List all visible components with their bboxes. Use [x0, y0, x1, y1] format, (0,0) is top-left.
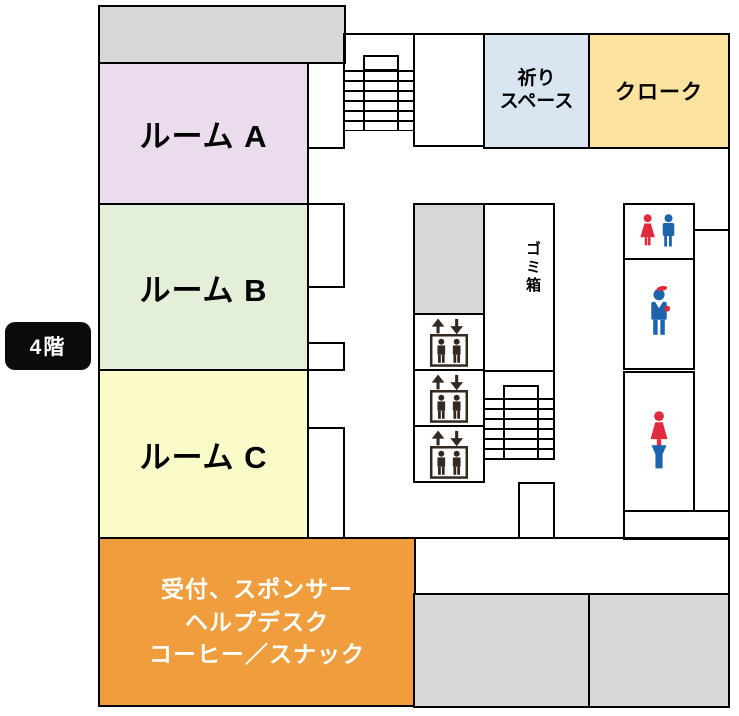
elevator-icon	[426, 317, 472, 367]
reception-label-line3: コーヒー／スナック	[149, 638, 365, 671]
elevator-cell-3	[413, 425, 485, 483]
restroom-men-women-icon	[637, 213, 681, 251]
stair-rail	[503, 398, 505, 458]
stair-rail	[397, 70, 399, 130]
prayer-space-label-line2: スペース	[500, 91, 574, 114]
room-b: ルーム B	[98, 203, 309, 371]
stair-rail	[363, 70, 365, 130]
wall-room-bottom	[413, 145, 485, 147]
restroom-men	[623, 258, 695, 370]
room-a-label: ルーム A	[139, 111, 267, 156]
room-c-label: ルーム C	[139, 432, 267, 477]
floor-map: ルーム A ルーム B ルーム C 受付、スポンサー ヘルプデスク コーヒー／ス…	[0, 0, 739, 716]
room-c: ルーム C	[98, 369, 309, 539]
cloak-room: クローク	[588, 33, 730, 149]
wall-service-divider	[483, 370, 555, 372]
reception-label-line1: 受付、スポンサー	[161, 573, 353, 606]
restroom-men-icon	[639, 285, 679, 343]
restroom-men-women	[623, 203, 695, 260]
room-b-label: ルーム B	[139, 265, 267, 310]
reception-area: 受付、スポンサー ヘルプデスク コーヒー／スナック	[98, 537, 416, 707]
room-b-entrance-lower	[307, 342, 345, 371]
room-c-entrance	[307, 427, 345, 539]
reception-label-line2: ヘルプデスク	[185, 606, 329, 639]
restroom-bottom-room	[623, 510, 730, 540]
wall-stairs-right	[413, 33, 415, 147]
stair-treads	[485, 398, 553, 459]
prayer-space-label-line1: 祈り	[500, 68, 574, 91]
trash-box-label: ゴミ箱	[525, 241, 540, 295]
elevator-icon	[426, 373, 472, 423]
small-room-center	[518, 482, 555, 539]
cloak-label: クローク	[615, 76, 703, 106]
restroom-women-icon	[642, 410, 676, 474]
room-b-entrance-upper	[307, 203, 345, 288]
stair-landing	[363, 55, 399, 71]
gray-area-bottom-left	[413, 593, 590, 708]
room-a-entrance	[307, 62, 345, 149]
wall-bottom-corridor	[413, 537, 730, 539]
elevator-cell-2	[413, 369, 485, 427]
wall-segment	[693, 229, 730, 231]
elevator-cell-1	[413, 313, 485, 371]
room-a: ルーム A	[98, 62, 309, 205]
gray-area-top	[98, 5, 346, 64]
floor-badge: 4階	[5, 322, 91, 370]
floor-badge-label: 4階	[30, 331, 67, 361]
gray-area-bottom-right	[588, 593, 730, 708]
stair-rail	[537, 398, 539, 458]
stair-treads	[345, 70, 413, 131]
elevator-icon	[426, 429, 472, 479]
restroom-women	[623, 371, 695, 512]
wall-segment	[483, 458, 485, 483]
prayer-space: 祈り スペース	[483, 33, 590, 149]
elevator-shaft-gray	[413, 203, 485, 315]
